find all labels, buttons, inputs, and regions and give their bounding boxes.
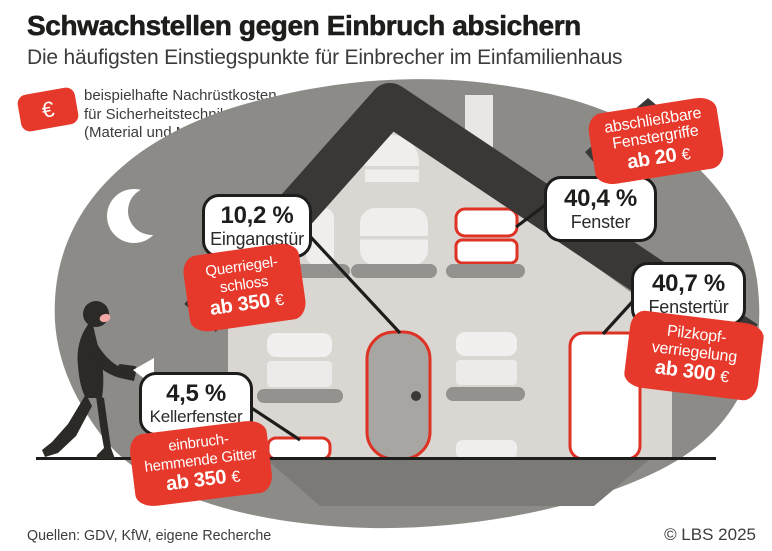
- window-fenster-secured: [456, 209, 517, 263]
- window-sill: [446, 387, 525, 401]
- window-ground-right-top: [456, 332, 517, 356]
- window-ground-left-top: [267, 333, 332, 357]
- window-sill: [351, 264, 437, 278]
- price-tag-pilzkopfverriegelung: Pilzkopf- verriegelung ab 300 €: [623, 309, 765, 402]
- window-ground-left-bottom: [267, 361, 332, 387]
- callout-label: Fenster: [571, 212, 631, 232]
- window-low-small: [456, 440, 517, 459]
- window-divider: [360, 236, 428, 240]
- price-tag-querriegelschloss: Querriegel- schloss ab 350 €: [181, 241, 308, 334]
- footer-sources: Quellen: GDV, KfW, eigene Recherche: [27, 527, 271, 544]
- callout-percent: 40,4 %: [564, 186, 637, 212]
- attic-window-divider: [362, 166, 422, 170]
- callout-box-fenster: 40,4 % Fenster: [544, 176, 657, 242]
- window-ground-right-bottom: [456, 360, 517, 385]
- window-sill: [446, 264, 525, 278]
- callout-percent: 10,2 %: [221, 203, 294, 229]
- infographic-canvas: Schwachstellen gegen Einbruch absichern …: [0, 0, 772, 551]
- door-knob: [411, 391, 421, 401]
- window-sill: [257, 389, 343, 403]
- ground-shadow: [266, 459, 650, 506]
- footer-copyright: © LBS 2025: [664, 525, 756, 545]
- callout-percent: 40,7 %: [652, 271, 725, 297]
- callout-percent: 4,5 %: [166, 381, 226, 407]
